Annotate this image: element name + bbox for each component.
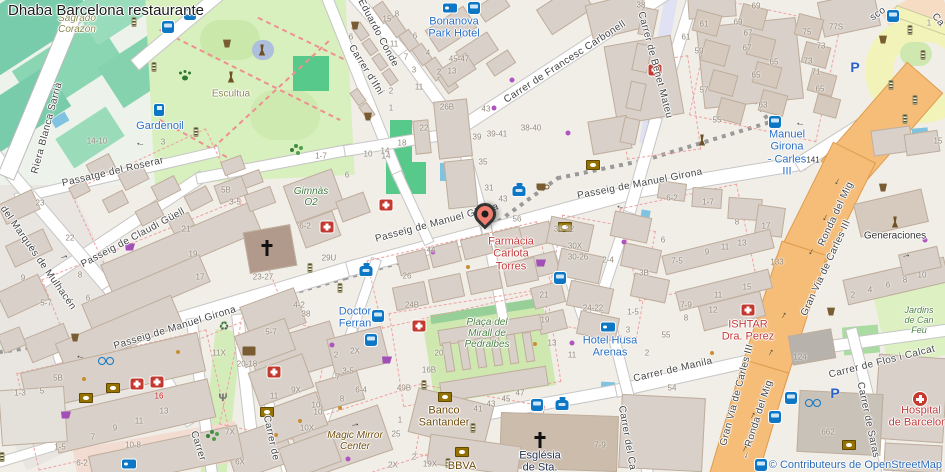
attribution-link[interactable]: © Contributeurs de OpenStreetMap [769, 459, 942, 471]
house-number: 24B [405, 301, 419, 310]
house-number: 21 [182, 225, 191, 234]
house-number: 29U [322, 254, 337, 263]
house-number: 4 [426, 49, 430, 58]
house-number: 54 [668, 384, 677, 393]
house-number: 5 [40, 387, 44, 396]
house-number: 2 [389, 87, 393, 96]
dot-orange-icon [298, 419, 302, 423]
house-number: 65 [752, 71, 761, 80]
house-number: 6 [413, 32, 417, 41]
house-number: 8 [735, 218, 739, 227]
house-number: 11 [714, 291, 722, 300]
house-number: 1-5 [54, 443, 66, 452]
dot-purple-icon [330, 343, 335, 348]
map-pin-icon [469, 198, 500, 229]
house-number: 2 [334, 351, 338, 360]
poi-label: FarmàciaCarlotaTorres [488, 236, 534, 273]
house-number: 133 [770, 258, 783, 267]
house-number: 10X [300, 424, 314, 433]
house-number: 7 [91, 433, 95, 442]
house-number: 6-4 [355, 386, 367, 395]
house-number: 65 [816, 85, 825, 94]
house-number: 75 [803, 28, 812, 37]
dot-purple-icon [492, 106, 497, 111]
house-number: 26B [440, 103, 454, 112]
house-number: 47 [516, 389, 525, 398]
house-number: 24-22 [583, 304, 603, 313]
dot-purple-icon [566, 131, 571, 136]
house-number: 10-8 [125, 441, 141, 450]
house-number: 11X [212, 349, 226, 358]
house-number: 7-5 [671, 257, 683, 266]
page-title: Dhaba Barcelona restaurante [8, 2, 204, 19]
bed-icon [122, 460, 136, 469]
parking-icon [830, 385, 839, 401]
house-number: 15 [743, 283, 752, 292]
house-number: 67 [744, 29, 753, 38]
money-icon [438, 392, 452, 402]
house-number: 2X [388, 461, 398, 470]
house-number: 14-10 [87, 137, 107, 146]
house-number: 4 [868, 286, 872, 295]
arrow-icon [900, 249, 912, 262]
house-number: 10 [918, 271, 927, 280]
house-number: 20 [435, 349, 444, 358]
dot-orange-icon [338, 406, 342, 410]
house-number: 6 [345, 171, 349, 180]
antenna-icon [219, 392, 228, 404]
house-number: 2-4 [602, 256, 614, 265]
poi-label: BancoSantander [419, 405, 470, 430]
dot-orange-icon [710, 351, 714, 355]
house-number: 22 [66, 234, 75, 243]
house-number: 73 [804, 57, 813, 66]
money-icon [79, 393, 93, 403]
signal-icon [0, 452, 5, 462]
house-number: 6X [235, 458, 245, 467]
paw-icon [182, 76, 188, 81]
dot-purple-icon [622, 240, 627, 245]
house-number: 31 [485, 184, 494, 193]
house-number: 38-40 [521, 124, 541, 133]
house-number: 5B [53, 374, 63, 383]
house-number: 2 [437, 68, 441, 77]
map-area [250, 90, 320, 140]
house-number: 2 [645, 349, 649, 358]
house-number: 13 [160, 407, 169, 416]
house-number: 11 [415, 83, 423, 92]
fuel-icon [154, 104, 164, 116]
house-number: 9 [21, 274, 25, 283]
map-area [252, 40, 274, 60]
house-number: 11 [721, 243, 729, 252]
house-number: 23-27 [253, 273, 273, 282]
signal-icon [338, 283, 343, 293]
house-number: 8 [340, 395, 344, 404]
mail-icon [243, 347, 256, 356]
taxi-icon [360, 266, 373, 276]
clinic-icon [742, 305, 755, 316]
bus-icon [468, 2, 480, 14]
dot-orange-icon [176, 350, 180, 354]
house-number: 65 [770, 58, 779, 67]
signal-icon [908, 25, 913, 35]
arrow-icon [349, 418, 361, 431]
dot-orange-icon [82, 377, 86, 381]
house-number: 38 [302, 310, 311, 319]
bus-icon [162, 21, 174, 33]
house-number: 11 [270, 392, 278, 401]
signal-icon [194, 127, 199, 137]
house-number: 1-7 [702, 198, 714, 207]
bus-icon [887, 10, 899, 22]
signal-icon [471, 423, 476, 433]
house-number: 19X [423, 460, 437, 469]
house-number: 4-2 [293, 301, 305, 310]
house-number: 15 [383, 15, 392, 24]
bus-icon [769, 411, 781, 423]
recycle-icon [219, 319, 230, 333]
house-number: 20-18 [237, 360, 257, 369]
house-number: 16 [155, 392, 164, 401]
dot-purple-icon [510, 78, 515, 83]
dot-orange-icon [533, 342, 537, 346]
building [244, 186, 276, 212]
house-number: 2 [851, 291, 855, 300]
house-number: 6-2 [299, 222, 311, 231]
house-number: 26 [403, 272, 412, 281]
house-number: 2X [350, 347, 360, 356]
house-number: 7 [404, 53, 408, 62]
house-number: 3 [161, 138, 165, 147]
money-icon [455, 447, 469, 457]
clinic-icon [131, 379, 144, 390]
house-number: 6 [86, 294, 90, 303]
house-number: 36-32 [554, 225, 574, 234]
bike-icon [99, 356, 113, 364]
poi-label: Esglésiade Sta. [519, 450, 561, 472]
money-icon [586, 160, 600, 170]
house-number: 61 [682, 33, 691, 42]
house-number: 5-7 [265, 328, 277, 337]
bin-icon [827, 307, 835, 316]
signal-icon [903, 114, 908, 124]
house-number: 41 [474, 405, 483, 414]
house-number: 39-41 [487, 130, 507, 139]
signal-icon [422, 380, 427, 390]
house-number: 7 [336, 373, 340, 382]
church-cross-icon [261, 240, 273, 256]
building [381, 68, 398, 87]
bus-icon [531, 399, 543, 411]
money-icon [842, 440, 856, 450]
church-cross-icon [534, 432, 546, 448]
arrow-icon [134, 139, 146, 152]
house-number: 1-5 [627, 308, 639, 317]
house-number: 11 [568, 351, 576, 360]
clinic-icon [321, 222, 334, 233]
house-number: 3-5 [342, 367, 354, 376]
house-number: 1 [389, 104, 393, 113]
poi-label: Escultua [212, 88, 250, 99]
house-number: 10 [312, 401, 321, 410]
building [476, 0, 511, 23]
house-number: 7-9 [594, 441, 606, 450]
signal-icon [152, 62, 157, 72]
house-number: 6 [886, 281, 890, 290]
poi-label: Hospitalde Barcelona [889, 405, 945, 430]
bed-icon [601, 323, 615, 332]
house-number: 2 [412, 453, 416, 462]
house-number: 35 [479, 158, 488, 167]
house-number: 8 [903, 276, 907, 285]
poi-label: Generaciones [864, 230, 926, 241]
house-number: 17 [196, 273, 205, 282]
signal-icon [308, 263, 313, 273]
house-number: 9 [113, 424, 117, 433]
house-number: 61 [700, 20, 709, 29]
house-number: 15 [934, 137, 943, 146]
poi-label: ManuelGirona- CarlesIII [768, 128, 807, 177]
signal-icon [921, 50, 926, 60]
house-number: 21 [540, 291, 549, 300]
house-number: 63 [759, 101, 768, 110]
poi-label: BonanovaPark Hotel [428, 16, 479, 41]
house-number: 17 [762, 222, 771, 231]
house-number: 6 [661, 236, 665, 245]
house-number: 55 [713, 116, 722, 125]
poi-label: Hotel HusaArenas [583, 335, 637, 360]
house-number: 23 [36, 199, 45, 208]
house-number: 141 [806, 156, 819, 165]
house-number: 16B [422, 366, 436, 375]
house-number: 69 [752, 2, 761, 11]
house-number: 6-2 [76, 459, 88, 468]
bus-icon [769, 116, 781, 128]
house-number: 73 [817, 42, 826, 51]
house-number: 8 [78, 271, 82, 280]
taxi-icon [556, 400, 569, 410]
signal-icon [913, 95, 918, 105]
house-number: 19 [541, 316, 550, 325]
house-number: 14 [381, 147, 390, 156]
house-number: 13 [448, 67, 457, 76]
map-area [293, 56, 329, 91]
house-number: 43 [482, 105, 491, 114]
house-number: 10 [364, 150, 373, 159]
house-number: 11 [135, 417, 143, 426]
parking-icon [850, 59, 859, 75]
house-number: 69 [734, 18, 743, 27]
bus-icon [785, 392, 797, 404]
bike-icon [806, 398, 820, 406]
house-number: 662 [821, 428, 834, 437]
cafe-icon [537, 184, 546, 191]
poi-label: Jardinsde CanFeu [904, 305, 933, 335]
house-number: 45 [502, 395, 511, 404]
house-number: 6 [349, 33, 353, 42]
money-icon [106, 383, 120, 393]
house-number: 19 [189, 250, 198, 259]
house-number: 71 [812, 68, 821, 77]
house-number: 39 [473, 133, 482, 142]
house-number: 45-47 [449, 55, 469, 64]
house-number: 67 [743, 44, 752, 53]
house-number: 55 [662, 331, 671, 340]
house-number: 13 [738, 239, 747, 248]
house-number: 9X [291, 386, 301, 395]
poi-label: ISHTARDra. Perez [722, 319, 775, 344]
house-number: 3 [626, 326, 630, 335]
bus-icon [755, 459, 767, 471]
house-number: 7-9 [680, 301, 692, 310]
dot-orange-icon [466, 265, 470, 269]
house-number: 25 [392, 430, 401, 439]
house-number: 8 [684, 314, 688, 323]
house-number: 43 [487, 400, 496, 409]
poi-label: Gardenoil [136, 120, 184, 132]
poi-label: Magic MirrorCenter [327, 430, 383, 452]
house-number: 1-7 [315, 152, 327, 161]
location-marker[interactable] [471, 201, 501, 239]
house-number: 38 [637, 1, 646, 10]
poi-label: Plaça delMirall dePedralbes [464, 317, 509, 351]
bus-icon [365, 334, 377, 346]
poi-label: GimnàsO2 [294, 186, 328, 208]
taxi-icon [513, 186, 526, 196]
house-number: 6-2 [666, 194, 678, 203]
clinic-icon [151, 377, 164, 388]
dot-purple-icon [346, 457, 351, 462]
house-number: 5-7 [40, 299, 52, 308]
house-number: 12 [709, 306, 718, 315]
house-number: 13 [548, 339, 557, 348]
clinic-icon [268, 367, 281, 378]
signal-icon [889, 80, 894, 90]
tree-icon [210, 430, 214, 434]
tree-icon [294, 144, 298, 148]
bed-icon [443, 4, 457, 13]
house-number: 8 [395, 10, 399, 19]
bin-icon [879, 183, 887, 192]
map-area [900, 42, 932, 66]
house-number: 30-26 [568, 253, 588, 262]
house-number: 59 [695, 47, 704, 56]
house-number: 22 [420, 124, 429, 133]
house-number: 56 [513, 215, 522, 224]
cart-icon [382, 357, 392, 364]
house-number: 1 [398, 416, 402, 425]
map-viewport[interactable]: 14-103158611743213112126B432218143939-41… [0, 0, 945, 472]
clinic-icon [413, 321, 426, 332]
house-number: 49B [397, 384, 411, 393]
poi-label: BBVA [448, 460, 477, 472]
house-number: 3B [639, 269, 649, 278]
house-number: 1-3 [14, 389, 26, 398]
bus-icon [554, 272, 566, 284]
house-number: 57 [700, 86, 709, 95]
house-number: 9 [705, 248, 709, 257]
bus-icon [372, 310, 384, 322]
house-number: 7X [225, 428, 235, 437]
house-number: 124 [793, 353, 806, 362]
house-number: 3 [412, 66, 416, 75]
house-number: 5B [221, 186, 231, 195]
house-number: 30X [568, 242, 582, 251]
poi-label: DoctorFerran [339, 306, 371, 331]
clinic-icon [380, 200, 393, 211]
house-number: 44 [427, 246, 436, 255]
building [0, 386, 68, 446]
house-number: 77S [829, 23, 843, 32]
house-number: 3-5 [229, 198, 241, 207]
house-number: 18 [398, 139, 407, 148]
dot-purple-icon [570, 341, 575, 346]
